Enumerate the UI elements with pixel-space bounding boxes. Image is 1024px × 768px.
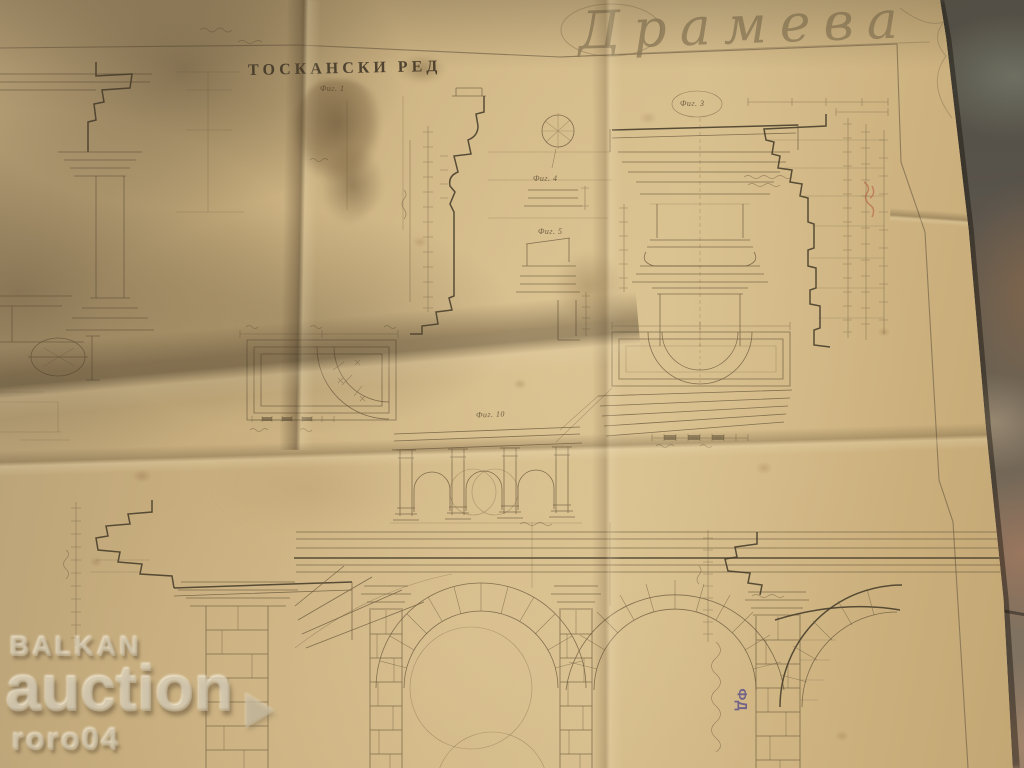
play-arrow-icon bbox=[246, 694, 274, 728]
figure-caption-under-title: Фиг. 1 bbox=[320, 84, 344, 93]
watermark-seller-name: roro04 bbox=[12, 722, 120, 758]
photo-of-architectural-drawing: ТОСКАНСКИ РЕД Фиг. 1 Фиг. 3 Фиг. 4 Фиг. … bbox=[0, 0, 1024, 768]
figure-label-detail-profile: Фиг. 5 bbox=[538, 227, 562, 236]
figure-label-arcade: Фиг. 10 bbox=[476, 409, 505, 419]
figure-label-detail-circle: Фиг. 4 bbox=[533, 174, 557, 183]
watermark-brand-main: auction bbox=[6, 652, 234, 726]
purple-ink-mark: ФД bbox=[735, 688, 751, 711]
figure-label-capital: Фиг. 3 bbox=[680, 99, 704, 108]
